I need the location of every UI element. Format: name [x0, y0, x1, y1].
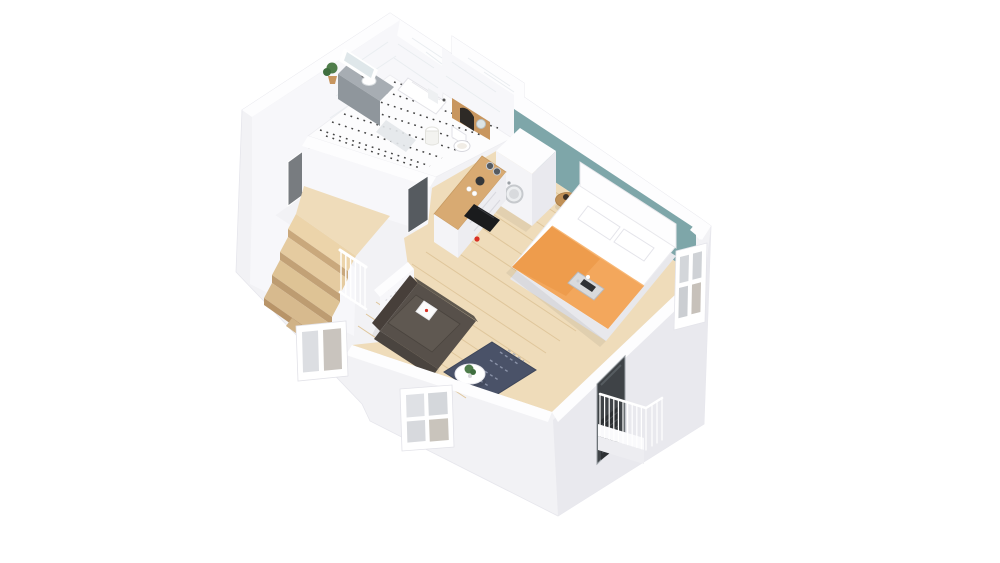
window-front [400, 385, 454, 451]
bathroom-plant-leaves-2 [323, 68, 331, 76]
burner-2 [493, 168, 500, 175]
cup-1 [467, 187, 472, 192]
toilet-seat [457, 143, 467, 149]
tray-cup [586, 275, 590, 279]
burner-1 [486, 162, 493, 169]
niche-round-mirror [477, 120, 486, 129]
table-plant-leaves-2 [470, 369, 476, 375]
floor-plan-render [0, 0, 1000, 563]
window-right [674, 243, 707, 330]
table-plant-pot [468, 374, 472, 378]
washing-machine-drum [509, 189, 519, 199]
tray-plate [577, 280, 580, 283]
sofa-pillow-heart [425, 309, 428, 312]
red-knob [474, 236, 479, 241]
window-left [296, 321, 348, 381]
laundry-basket-body [426, 131, 439, 145]
floor-plan-svg [0, 0, 1000, 563]
cup-2 [472, 191, 477, 196]
kettle [476, 177, 485, 186]
washing-machine-knob [507, 181, 510, 184]
shower-faucet [443, 99, 446, 102]
